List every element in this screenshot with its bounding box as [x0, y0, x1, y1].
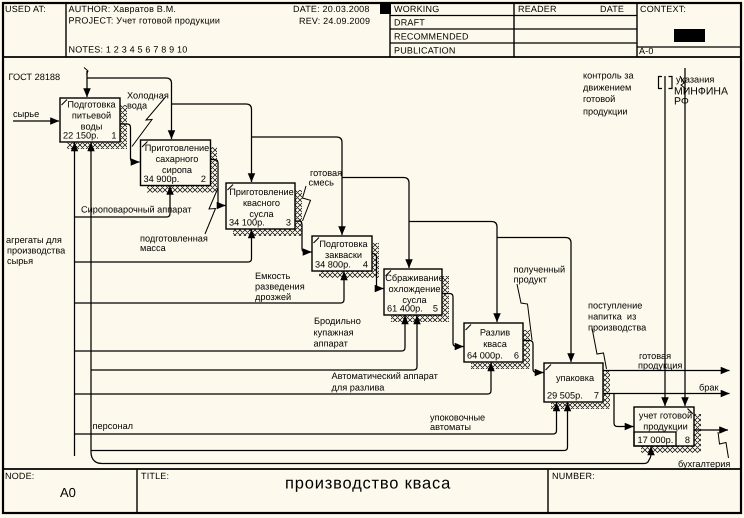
svg-text:готовая: готовая [310, 168, 342, 178]
svg-text:сырья: сырья [7, 256, 33, 266]
svg-text:аппарат: аппарат [314, 339, 349, 349]
svg-text:агрегаты для: агрегаты для [6, 235, 62, 245]
svg-text:DATE: DATE [600, 4, 624, 14]
svg-text:Подготовка: Подготовка [67, 100, 116, 110]
svg-text:DRAFT: DRAFT [394, 18, 425, 28]
svg-text:8: 8 [685, 435, 690, 445]
svg-text:DATE: 20.03.2008: DATE: 20.03.2008 [293, 4, 370, 14]
svg-text:NUMBER:: NUMBER: [552, 471, 595, 481]
svg-text:4: 4 [363, 260, 368, 270]
svg-text:брак: брак [699, 383, 719, 393]
svg-text:2: 2 [201, 174, 206, 184]
svg-text:кваса: кваса [483, 339, 508, 349]
svg-text:учет готовой: учет готовой [639, 411, 692, 421]
svg-text:A-0: A-0 [639, 46, 654, 56]
svg-text:Бродильно: Бродильно [314, 316, 361, 326]
svg-text:22 150р.: 22 150р. [63, 131, 99, 141]
svg-text:продукции: продукции [583, 107, 628, 117]
svg-text:61 400р.: 61 400р. [387, 304, 423, 314]
svg-text:Сироповарочный аппарат: Сироповарочный аппарат [81, 205, 192, 215]
svg-text:Приготовление: Приготовление [229, 187, 294, 197]
svg-text:AUTHOR: Хавратов В.М.: AUTHOR: Хавратов В.М. [69, 4, 177, 14]
svg-text:NODE:: NODE: [5, 471, 35, 481]
svg-text:A0: A0 [60, 485, 76, 500]
svg-text:PUBLICATION: PUBLICATION [394, 46, 456, 56]
svg-text:автоматы: автоматы [430, 422, 471, 432]
svg-text:TITLE:: TITLE: [141, 471, 169, 481]
svg-text:охлождение: охлождение [388, 284, 440, 294]
svg-text:персонал: персонал [93, 421, 134, 431]
svg-text:ГОСТ 28188: ГОСТ 28188 [9, 72, 61, 82]
svg-text:движением: движением [583, 83, 631, 93]
svg-text:продукции: продукции [643, 422, 688, 432]
svg-text:упоковочные: упоковочные [430, 413, 485, 423]
svg-text:продукция: продукция [638, 361, 682, 371]
svg-text:готовая: готовая [639, 351, 671, 361]
svg-text:питьевой: питьевой [72, 111, 111, 121]
svg-text:масса: масса [140, 243, 167, 253]
svg-text:Холодная: Холодная [127, 91, 169, 101]
svg-text:купажная: купажная [314, 327, 354, 337]
svg-text:34 900р.: 34 900р. [144, 174, 180, 184]
svg-text:закваски: закваски [325, 250, 362, 260]
svg-text:готовой: готовой [583, 94, 615, 104]
svg-text:поступление: поступление [588, 301, 642, 311]
svg-text:РФ: РФ [674, 96, 689, 108]
svg-text:сырье: сырье [13, 109, 39, 119]
svg-text:вода: вода [127, 101, 148, 111]
svg-text:Автоматический аппарат: Автоматический аппарат [332, 371, 439, 381]
svg-text:3: 3 [286, 218, 291, 228]
svg-text:сахарного: сахарного [156, 154, 199, 164]
svg-text:напитка из: напитка из [588, 312, 636, 322]
svg-text:продукт: продукт [514, 275, 548, 285]
svg-text:производство кваса: производство кваса [285, 475, 451, 493]
svg-text:1: 1 [111, 131, 116, 141]
svg-text:7: 7 [594, 391, 599, 401]
svg-text:29 505р.: 29 505р. [547, 391, 583, 401]
svg-text:производства: производства [588, 323, 647, 333]
svg-text:34 800р.: 34 800р. [315, 260, 351, 270]
svg-text:разведения: разведения [255, 282, 305, 292]
svg-text:производства: производства [7, 246, 66, 256]
svg-text:5: 5 [433, 304, 438, 314]
svg-text:Приготовление: Приготовление [145, 143, 210, 153]
svg-text:READER: READER [518, 4, 557, 14]
svg-text:контроль за: контроль за [583, 71, 634, 81]
svg-text:для разлива: для разлива [332, 383, 386, 393]
svg-text:PROJECT: Учет готовой продукц: PROJECT: Учет готовой продукции [69, 16, 221, 26]
svg-text:Подготовка: Подготовка [319, 239, 368, 249]
svg-text:Емкость: Емкость [255, 271, 290, 281]
svg-text:WORKING: WORKING [394, 4, 439, 14]
svg-text:упаковка: упаковка [556, 373, 595, 383]
svg-text:Сбраживание: Сбраживание [385, 273, 444, 283]
svg-text:CONTEXT:: CONTEXT: [640, 4, 686, 14]
svg-text:34 100р.: 34 100р. [229, 218, 265, 228]
svg-text:USED AT:: USED AT: [5, 4, 46, 14]
svg-text:Разлив: Разлив [480, 328, 510, 338]
svg-text:подготовленная: подготовленная [140, 234, 208, 244]
svg-text:указания: указания [676, 75, 714, 85]
svg-text:квасного: квасного [243, 198, 280, 208]
svg-text:REV: 24.09.2009: REV: 24.09.2009 [299, 16, 370, 26]
svg-text:6: 6 [514, 351, 519, 361]
svg-text:RECOMMENDED: RECOMMENDED [394, 32, 469, 42]
svg-text:смесь: смесь [309, 178, 335, 188]
svg-text:17 000р.: 17 000р. [638, 435, 674, 445]
svg-text:полученный: полученный [514, 265, 566, 275]
svg-text:NOTES: 1 2 3 4 5 6 7 8: NOTES: 1 2 3 4 5 6 7 8 9 10 [69, 45, 188, 55]
svg-text:дрозжей: дрозжей [255, 292, 291, 302]
svg-text:64 000р.: 64 000р. [467, 351, 503, 361]
svg-text:бухгалтерия: бухгалтерия [678, 459, 730, 469]
